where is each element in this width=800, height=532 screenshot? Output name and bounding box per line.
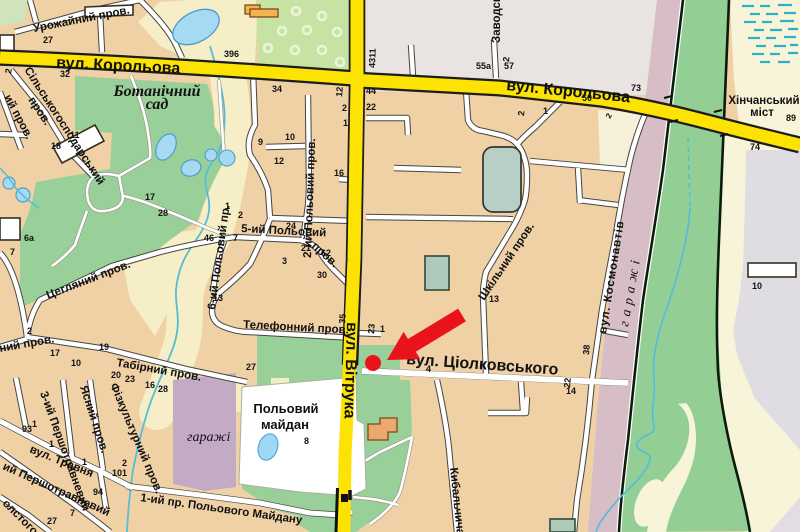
svg-text:30: 30 [317, 270, 327, 280]
svg-text:1: 1 [32, 419, 37, 429]
svg-text:13: 13 [213, 293, 223, 303]
svg-text:22: 22 [366, 102, 376, 112]
svg-text:10: 10 [285, 132, 295, 142]
svg-text:гаражі: гаражі [187, 430, 230, 445]
svg-text:1: 1 [82, 457, 87, 467]
svg-text:16: 16 [334, 168, 344, 178]
svg-text:1: 1 [225, 201, 230, 211]
svg-text:44: 44 [366, 86, 376, 96]
svg-text:10: 10 [71, 358, 81, 368]
svg-text:1: 1 [49, 439, 54, 449]
svg-text:10: 10 [752, 281, 762, 291]
svg-text:27: 27 [43, 35, 53, 45]
svg-text:1: 1 [380, 324, 385, 334]
svg-text:1: 1 [543, 106, 548, 116]
svg-text:62: 62 [321, 248, 331, 258]
svg-text:7: 7 [10, 247, 15, 257]
svg-text:17: 17 [50, 348, 60, 358]
svg-text:27: 27 [47, 516, 57, 526]
svg-text:94: 94 [93, 487, 103, 497]
svg-text:34: 34 [272, 84, 282, 94]
svg-text:2: 2 [501, 56, 511, 62]
svg-text:46: 46 [204, 233, 214, 243]
svg-text:1: 1 [343, 118, 348, 128]
svg-text:4311: 4311 [367, 48, 378, 68]
svg-text:12: 12 [334, 86, 345, 97]
svg-text:23: 23 [366, 323, 377, 334]
svg-text:вул. Вітрука: вул. Вітрука [340, 322, 360, 419]
svg-text:Заводська: Заводська [491, 0, 503, 43]
svg-text:7: 7 [233, 233, 238, 243]
svg-text:2: 2 [238, 210, 243, 220]
svg-text:сад: сад [146, 96, 169, 113]
svg-text:13: 13 [489, 294, 499, 304]
svg-text:3: 3 [282, 256, 287, 266]
svg-text:18: 18 [51, 141, 61, 151]
svg-text:міст: міст [750, 107, 774, 119]
svg-text:2: 2 [342, 103, 347, 113]
svg-text:Хінчанський: Хінчанський [728, 95, 799, 107]
svg-text:32: 32 [60, 69, 70, 79]
svg-text:101: 101 [112, 468, 127, 478]
svg-text:38: 38 [581, 344, 592, 355]
svg-text:93: 93 [22, 424, 32, 434]
svg-text:6а: 6а [24, 233, 35, 243]
svg-text:Польовий: Польовий [253, 401, 318, 416]
svg-text:20: 20 [111, 370, 121, 380]
svg-text:2: 2 [516, 110, 526, 116]
svg-text:8: 8 [304, 436, 309, 446]
svg-text:23: 23 [125, 374, 135, 384]
svg-text:11: 11 [70, 130, 80, 140]
svg-text:19: 19 [99, 342, 109, 352]
svg-text:27: 27 [246, 362, 256, 372]
svg-text:12: 12 [274, 156, 284, 166]
svg-text:35: 35 [337, 313, 348, 324]
svg-text:4: 4 [426, 364, 431, 374]
svg-text:2: 2 [122, 458, 127, 468]
svg-text:74: 74 [750, 142, 760, 152]
svg-text:16: 16 [145, 380, 155, 390]
svg-text:396: 396 [224, 49, 239, 59]
svg-text:9: 9 [258, 137, 263, 147]
svg-text:73: 73 [631, 83, 641, 93]
svg-text:21: 21 [301, 243, 311, 253]
svg-text:7: 7 [70, 508, 75, 518]
svg-text:майдан: майдан [261, 417, 309, 432]
svg-text:14: 14 [566, 386, 576, 396]
svg-text:55а: 55а [476, 61, 492, 71]
svg-text:28: 28 [158, 384, 168, 394]
svg-text:2: 2 [27, 326, 32, 336]
svg-text:17: 17 [145, 192, 155, 202]
svg-text:50: 50 [582, 93, 592, 103]
svg-text:89: 89 [786, 113, 796, 123]
svg-text:24: 24 [286, 221, 296, 231]
svg-text:28: 28 [158, 208, 168, 218]
